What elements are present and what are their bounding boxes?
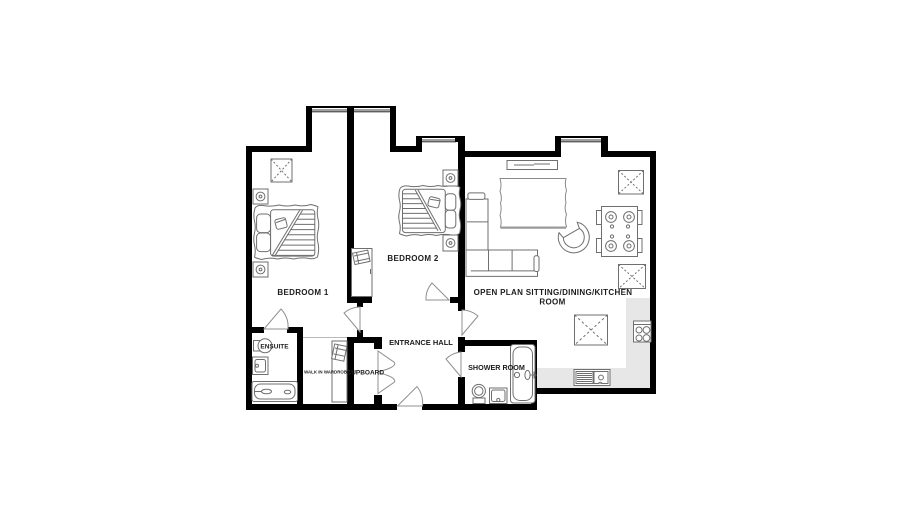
svg-text:ROOM: ROOM [539, 298, 565, 307]
svg-text:ENSUITE: ENSUITE [260, 344, 289, 351]
svg-text:BEDROOM 2: BEDROOM 2 [387, 254, 438, 263]
svg-text:ENTRANCE HALL: ENTRANCE HALL [389, 338, 453, 347]
svg-text:OPEN PLAN SITTING/DINING/KITCH: OPEN PLAN SITTING/DINING/KITCHEN [474, 288, 633, 297]
svg-text:SHOWER ROOM: SHOWER ROOM [468, 363, 525, 372]
svg-text:CUPBOARD: CUPBOARD [347, 369, 385, 376]
svg-text:WALK IN WARDROBE: WALK IN WARDROBE [304, 370, 350, 375]
svg-text:BEDROOM 1: BEDROOM 1 [277, 288, 328, 297]
